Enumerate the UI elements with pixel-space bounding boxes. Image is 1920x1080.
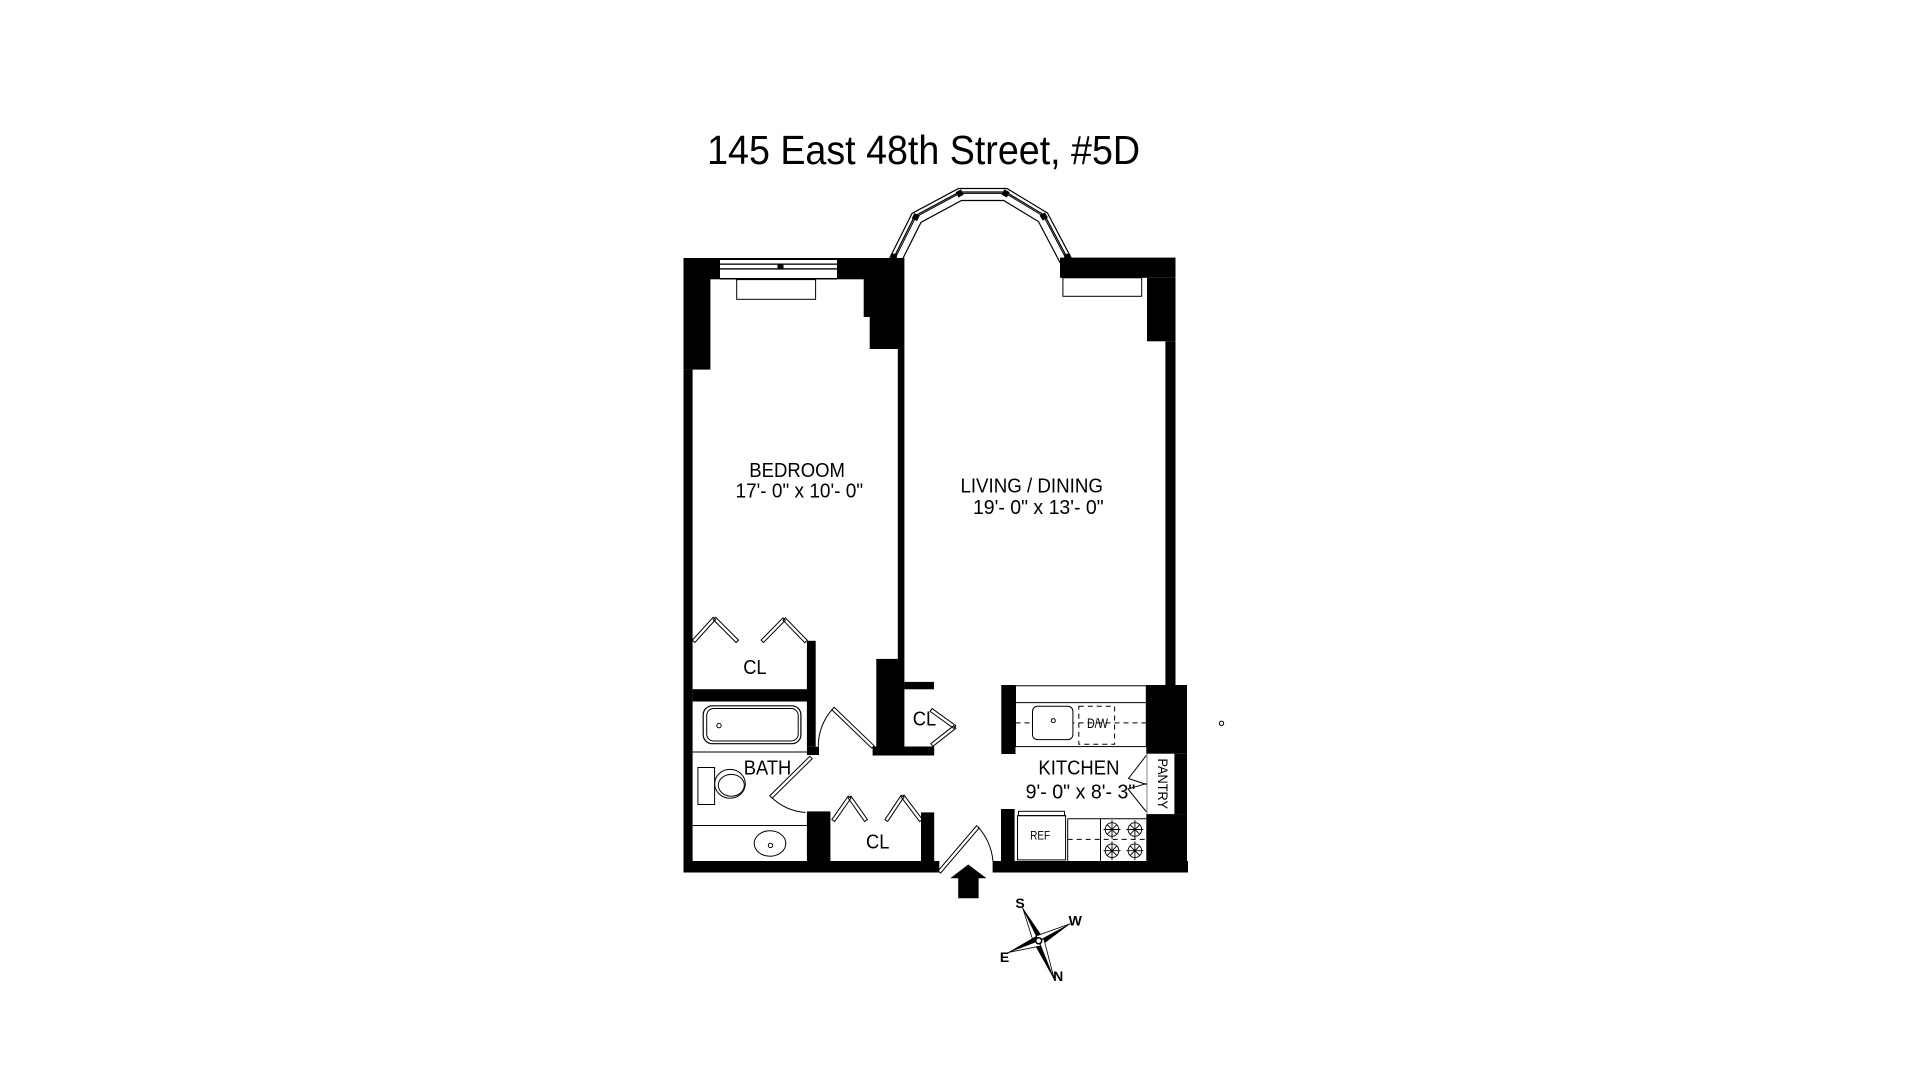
- svg-text:CL: CL: [866, 832, 889, 854]
- svg-text:REF: REF: [1030, 831, 1050, 843]
- svg-text:BATH: BATH: [744, 758, 792, 780]
- svg-text:19'- 0" x 13'- 0": 19'- 0" x 13'- 0": [973, 497, 1104, 519]
- svg-text:E: E: [1000, 949, 1009, 965]
- svg-text:S: S: [1015, 895, 1024, 911]
- svg-text:LIVING / DINING: LIVING / DINING: [960, 475, 1103, 497]
- svg-text:CL: CL: [913, 709, 936, 731]
- svg-text:CL: CL: [743, 657, 766, 679]
- svg-text:PANTRY: PANTRY: [1155, 758, 1170, 809]
- svg-text:D/W: D/W: [1087, 716, 1108, 731]
- svg-text:145 East 48th Street, #5D: 145 East 48th Street, #5D: [707, 127, 1140, 173]
- svg-text:BEDROOM: BEDROOM: [749, 460, 845, 482]
- svg-text:N: N: [1053, 968, 1063, 984]
- svg-text:17'- 0" x 10'- 0": 17'- 0" x 10'- 0": [736, 481, 864, 503]
- svg-text:W: W: [1069, 913, 1083, 929]
- svg-text:9'- 0" x 8'- 3": 9'- 0" x 8'- 3": [1026, 781, 1136, 803]
- svg-text:KITCHEN: KITCHEN: [1038, 758, 1119, 780]
